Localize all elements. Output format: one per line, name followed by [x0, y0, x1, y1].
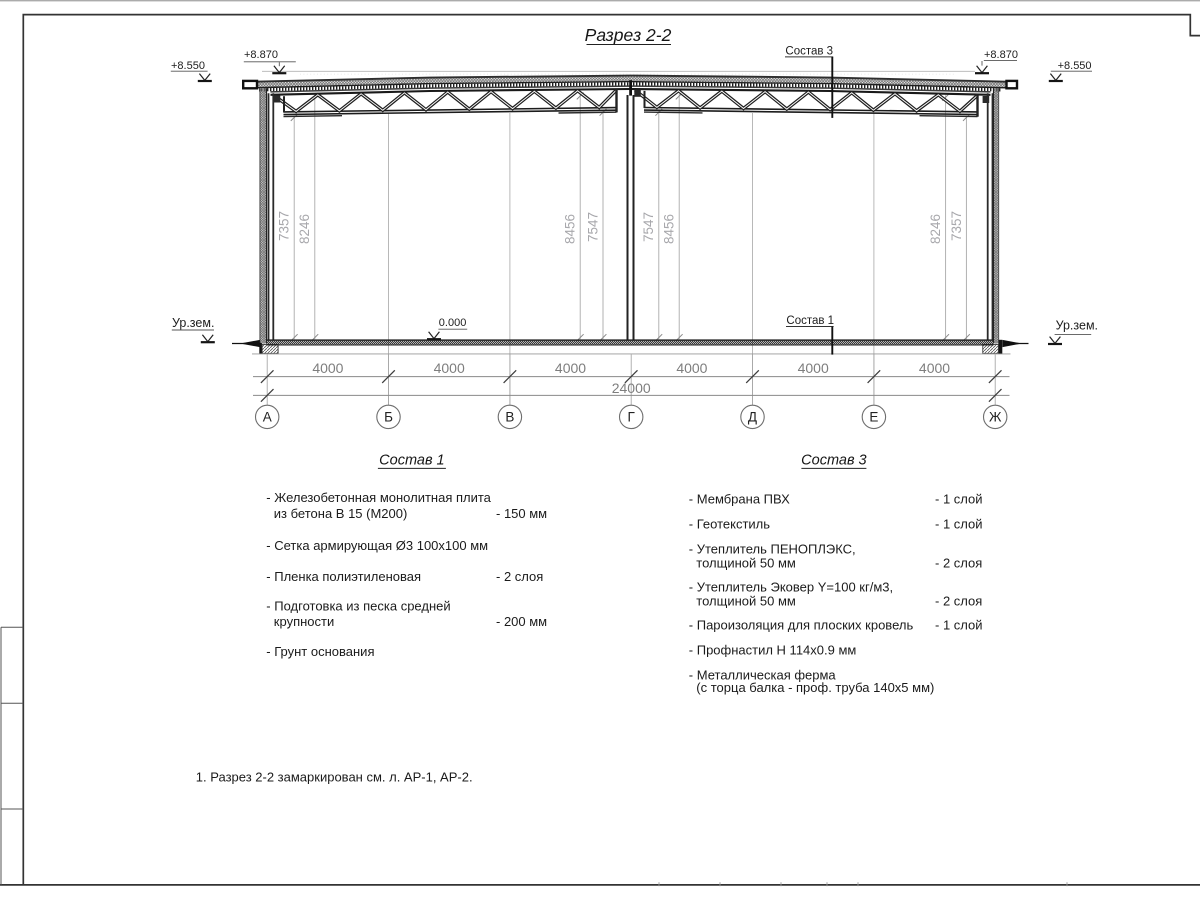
svg-text:Состав 1: Состав 1 [786, 315, 834, 327]
svg-text:- Пароизоляция для плоских кро: - Пароизоляция для плоских кровель [689, 617, 914, 632]
svg-text:Состав 1: Состав 1 [379, 452, 444, 468]
svg-text:Ур.зем.: Ур.зем. [1056, 319, 1098, 333]
svg-text:4000: 4000 [312, 360, 343, 376]
svg-text:+8.870: +8.870 [984, 49, 1018, 61]
svg-text:7547: 7547 [641, 212, 656, 242]
svg-text:- Утеплитель ПЕНОПЛЭКС,: - Утеплитель ПЕНОПЛЭКС, [689, 541, 856, 556]
svg-text:- 2 слоя: - 2 слоя [496, 569, 543, 584]
svg-text:- Геотекстиль: - Геотекстиль [689, 516, 770, 531]
svg-text:4000: 4000 [676, 360, 707, 376]
svg-text:Г: Г [628, 410, 636, 425]
svg-text:- 2 слоя: - 2 слоя [935, 555, 982, 570]
svg-text:- 200 мм: - 200 мм [496, 614, 547, 629]
svg-text:- Подготовка из песка средней: - Подготовка из песка средней [266, 598, 450, 613]
svg-text:7547: 7547 [585, 212, 600, 242]
svg-text:8246: 8246 [928, 214, 943, 244]
svg-text:толщиной 50 мм: толщиной 50 мм [696, 594, 796, 609]
svg-text:Е: Е [869, 410, 878, 425]
svg-text:8456: 8456 [563, 214, 578, 244]
svg-text:Состав 3: Состав 3 [801, 452, 866, 468]
svg-text:толщиной 50 мм: толщиной 50 мм [696, 555, 796, 570]
svg-text:7357: 7357 [949, 211, 964, 241]
svg-text:24000: 24000 [612, 380, 651, 396]
svg-text:+8.550: +8.550 [171, 60, 205, 72]
svg-text:1. Разрез 2-2 замаркирован см.: 1. Разрез 2-2 замаркирован см. л. АР-1, … [196, 770, 473, 785]
svg-text:- Сетка армирующая Ø3 100х100: - Сетка армирующая Ø3 100х100 мм [266, 538, 488, 553]
svg-text:В: В [505, 410, 514, 425]
svg-text:8246: 8246 [297, 214, 312, 244]
svg-text:- 1 слой: - 1 слой [935, 516, 983, 531]
svg-text:Ур.зем.: Ур.зем. [172, 316, 214, 330]
svg-text:Ж: Ж [989, 410, 1002, 425]
svg-text:(с торца балка - проф. труба 1: (с торца балка - проф. труба 140х5 мм) [696, 680, 934, 695]
svg-text:А: А [263, 410, 272, 425]
svg-text:- Пленка полиэтиленовая: - Пленка полиэтиленовая [266, 569, 421, 584]
svg-text:Разрез 2-2: Разрез 2-2 [585, 25, 672, 45]
svg-text:Состав 3: Состав 3 [785, 45, 833, 57]
svg-text:+8.550: +8.550 [1058, 60, 1092, 72]
svg-text:Д: Д [748, 410, 757, 425]
svg-text:+8.870: +8.870 [244, 49, 278, 61]
svg-text:8456: 8456 [662, 214, 677, 244]
svg-text:- Профнастил Н 114х0.9 мм: - Профнастил Н 114х0.9 мм [689, 642, 857, 657]
svg-text:крупности: крупности [274, 614, 334, 629]
svg-text:7357: 7357 [277, 211, 292, 241]
svg-text:- Мембрана ПВХ: - Мембрана ПВХ [689, 491, 790, 506]
svg-text:4000: 4000 [919, 360, 950, 376]
svg-text:- 1 слой: - 1 слой [935, 491, 983, 506]
svg-text:- 1 слой: - 1 слой [935, 617, 983, 632]
svg-text:- 2 слоя: - 2 слоя [935, 594, 982, 609]
svg-text:Б: Б [384, 410, 393, 425]
svg-text:4000: 4000 [798, 360, 829, 376]
svg-text:4000: 4000 [434, 360, 465, 376]
svg-text:из бетона В 15 (М200): из бетона В 15 (М200) [274, 506, 408, 521]
svg-text:- 150 мм: - 150 мм [496, 506, 547, 521]
svg-text:4000: 4000 [555, 360, 586, 376]
svg-text:- Утеплитель Эковер Y=100 кг/м: - Утеплитель Эковер Y=100 кг/м3, [689, 580, 893, 595]
svg-text:- Грунт основания: - Грунт основания [266, 644, 374, 659]
svg-text:0.000: 0.000 [439, 317, 467, 329]
svg-text:- Железобетонная монолитная пл: - Железобетонная монолитная плита [266, 490, 491, 505]
